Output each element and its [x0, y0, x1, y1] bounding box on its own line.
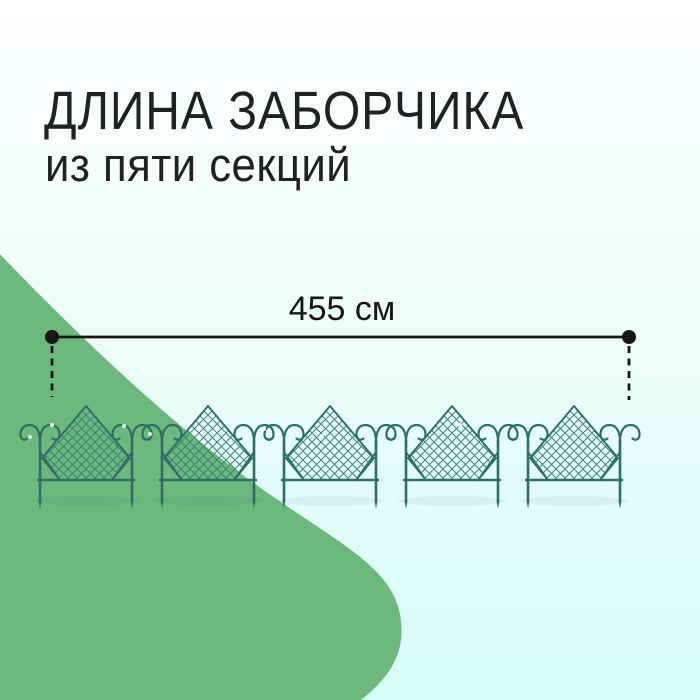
highlight-dot: [262, 427, 266, 431]
fence-section: [504, 318, 644, 566]
highlight-dot: [50, 423, 54, 427]
highlight-dot: [28, 435, 32, 439]
ground-shadows: [32, 496, 628, 506]
highlight-dot: [148, 432, 152, 436]
highlight-dot: [320, 434, 324, 438]
highlight-dot: [458, 423, 462, 427]
fence-section: [382, 318, 522, 566]
highlight-dot: [122, 424, 126, 428]
page-subtitle: из пяти секций: [45, 141, 351, 188]
dimension-endpoint-right-dot: [622, 330, 636, 344]
dimension-endpoint-left-dot: [45, 330, 59, 344]
dimension-label: 455 см: [260, 292, 424, 326]
lattice-mesh: [382, 318, 522, 566]
page-title: ДЛИНА ЗАБОРЧИКА: [44, 84, 524, 138]
highlight-dot: [197, 426, 201, 430]
product-card: ДЛИНА ЗАБОРЧИКА из пяти секций 455 см: [0, 0, 700, 700]
lattice-mesh: [504, 318, 644, 566]
